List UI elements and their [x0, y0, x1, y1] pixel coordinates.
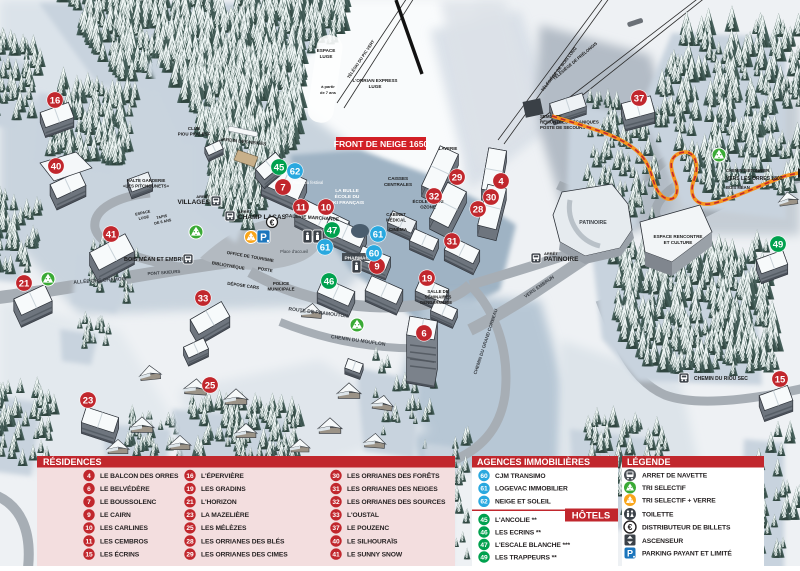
- svg-text:LES ÉCRINS: LES ÉCRINS: [100, 549, 140, 558]
- svg-text:LES ORRIANES DES CIMES: LES ORRIANES DES CIMES: [201, 551, 288, 558]
- svg-text:LE SILHOURAÏS: LE SILHOURAÏS: [347, 537, 398, 545]
- svg-text:7: 7: [280, 182, 285, 193]
- svg-text:LE BOUSSOLENC: LE BOUSSOLENC: [100, 499, 157, 506]
- svg-text:21: 21: [186, 499, 194, 506]
- svg-text:4: 4: [498, 176, 504, 187]
- svg-text:49: 49: [480, 554, 488, 561]
- svg-text:POLICE: POLICE: [273, 281, 289, 286]
- svg-text:LES ORRIANES DES FORÊTS: LES ORRIANES DES FORÊTS: [347, 471, 440, 480]
- svg-text:ET CULTURE: ET CULTURE: [664, 240, 693, 245]
- svg-text:23: 23: [186, 512, 194, 519]
- svg-text:25: 25: [186, 525, 194, 532]
- svg-text:MÉDICAL: MÉDICAL: [386, 218, 406, 223]
- svg-text:L'ORRIAN EXPRESS: L'ORRIAN EXPRESS: [353, 78, 398, 83]
- svg-text:16: 16: [186, 473, 194, 480]
- svg-text:LOGEVAC IMMOBILIER: LOGEVAC IMMOBILIER: [495, 486, 568, 493]
- svg-text:€: €: [270, 218, 275, 228]
- svg-text:Place d'accueil: Place d'accueil: [280, 249, 308, 254]
- svg-text:CENTRALES: CENTRALES: [384, 182, 412, 187]
- svg-text:31: 31: [332, 486, 340, 493]
- svg-text:TRI SELECTIF + VERRE: TRI SELECTIF + VERRE: [642, 498, 716, 505]
- svg-text:€: €: [628, 522, 633, 532]
- svg-text:PATINOIRE: PATINOIRE: [544, 256, 579, 263]
- svg-text:23: 23: [83, 395, 94, 406]
- svg-text:NEIGE ET SOLEIL: NEIGE ET SOLEIL: [495, 499, 551, 506]
- svg-text:11: 11: [86, 538, 93, 545]
- svg-text:49: 49: [773, 239, 784, 250]
- svg-text:LE SUNNY SNOW: LE SUNNY SNOW: [347, 551, 403, 558]
- svg-text:32: 32: [429, 191, 440, 202]
- svg-text:ARRET DE NAVETTE: ARRET DE NAVETTE: [642, 473, 708, 480]
- svg-text:LES ORRIANES DES SOURCES: LES ORRIANES DES SOURCES: [347, 499, 446, 506]
- svg-text:60: 60: [369, 248, 380, 259]
- svg-text:4: 4: [87, 473, 91, 480]
- svg-text:40: 40: [332, 538, 340, 545]
- svg-text:LES GRADINS: LES GRADINS: [201, 486, 246, 493]
- svg-text:AGENCES IMMOBILIÈRES: AGENCES IMMOBILIÈRES: [477, 457, 590, 467]
- svg-text:9: 9: [87, 512, 91, 519]
- svg-text:DISTRIBUTEUR DE BILLETS: DISTRIBUTEUR DE BILLETS: [642, 525, 731, 532]
- svg-text:33: 33: [332, 512, 340, 519]
- svg-text:LUGE: LUGE: [320, 54, 333, 59]
- svg-text:LES MÉLÈZES: LES MÉLÈZES: [201, 523, 247, 532]
- svg-text:ESPACE RENCONTRE: ESPACE RENCONTRE: [654, 234, 703, 239]
- svg-text:PATINOIRE: PATINOIRE: [579, 220, 607, 226]
- svg-text:PIOU PIOU ESF: PIOU PIOU ESF: [178, 132, 211, 137]
- svg-text:19: 19: [422, 273, 433, 284]
- svg-text:9: 9: [374, 261, 379, 272]
- svg-text:LE POUZENC: LE POUZENC: [347, 525, 389, 532]
- svg-text:CJM TRANSIMO: CJM TRANSIMO: [495, 473, 545, 480]
- svg-text:HALTE GARDERIE: HALTE GARDERIE: [127, 178, 166, 183]
- svg-text:32: 32: [332, 499, 340, 506]
- svg-text:L'OUSTAL: L'OUSTAL: [347, 512, 379, 519]
- svg-text:47: 47: [480, 542, 488, 549]
- svg-text:PARKING PAYANT ET LIMITÉ: PARKING PAYANT ET LIMITÉ: [642, 549, 732, 558]
- svg-text:SÉMINAIRES: SÉMINAIRES: [425, 295, 452, 300]
- svg-text:VERS LES ORRES 1800: VERS LES ORRES 1800: [726, 176, 783, 182]
- svg-text:40: 40: [51, 161, 62, 172]
- svg-text:31: 31: [447, 236, 458, 247]
- svg-text:28: 28: [473, 204, 484, 215]
- svg-text:TRI SELECTIF: TRI SELECTIF: [642, 485, 686, 492]
- svg-text:19: 19: [186, 486, 194, 493]
- svg-text:33: 33: [198, 293, 209, 304]
- svg-text:45: 45: [274, 162, 285, 173]
- svg-text:BOIS MÉAN ET EMBRUN: BOIS MÉAN ET EMBRUN: [124, 255, 189, 263]
- svg-text:10: 10: [85, 525, 93, 532]
- svg-text:LES CEMBROS: LES CEMBROS: [100, 538, 149, 545]
- svg-text:6: 6: [87, 486, 91, 493]
- svg-text:MUNICIPALE: MUNICIPALE: [268, 287, 295, 292]
- svg-text:LAVERIE: LAVERIE: [439, 146, 458, 151]
- svg-text:CHAMP LACAS: CHAMP LACAS: [238, 214, 287, 221]
- svg-text:CABINET: CABINET: [386, 212, 406, 217]
- svg-text:60: 60: [480, 473, 488, 480]
- svg-text:VILLAGES: VILLAGES: [177, 199, 210, 206]
- svg-text:6: 6: [421, 328, 426, 339]
- svg-text:46: 46: [480, 529, 488, 536]
- svg-text:15: 15: [775, 374, 786, 385]
- svg-text:37: 37: [332, 525, 340, 532]
- svg-text:CAISSES: CAISSES: [388, 176, 408, 181]
- svg-text:LES ORRIANES DES BLÉS: LES ORRIANES DES BLÉS: [201, 536, 285, 545]
- svg-text:61: 61: [320, 242, 331, 253]
- svg-text:CLUB: CLUB: [188, 126, 200, 131]
- svg-text:LES ORRIANES DES NEIGES: LES ORRIANES DES NEIGES: [347, 486, 438, 493]
- svg-text:Place du festival: Place du festival: [293, 180, 324, 185]
- svg-text:GENDARMERIE: GENDARMERIE: [420, 300, 452, 305]
- svg-text:P: P: [627, 548, 633, 558]
- svg-text:11: 11: [296, 202, 307, 213]
- svg-text:L'ANCOLIE **: L'ANCOLIE **: [495, 517, 537, 524]
- svg-text:16: 16: [50, 95, 61, 106]
- svg-text:61: 61: [373, 229, 384, 240]
- svg-text:LUGE: LUGE: [369, 84, 382, 89]
- svg-text:62: 62: [480, 499, 488, 506]
- svg-text:SKI FRANÇAIS: SKI FRANÇAIS: [330, 200, 365, 206]
- svg-text:37: 37: [634, 93, 645, 104]
- svg-text:CHEMIN PIÉTONNIER: CHEMIN PIÉTONNIER: [726, 168, 769, 173]
- svg-text:62: 62: [290, 166, 301, 177]
- svg-text:TOILETTE: TOILETTE: [642, 512, 674, 519]
- svg-text:46: 46: [324, 276, 335, 287]
- svg-text:RÉSIDENCES: RÉSIDENCES: [43, 457, 102, 467]
- svg-text:P: P: [260, 233, 267, 244]
- svg-text:10: 10: [321, 202, 332, 213]
- svg-text:BOIS MÉAN: BOIS MÉAN: [726, 185, 750, 190]
- svg-text:29: 29: [452, 172, 463, 183]
- svg-text:CINÉMA: CINÉMA: [389, 225, 408, 232]
- svg-text:L'ÉPERVIÈRE: L'ÉPERVIÈRE: [201, 471, 244, 480]
- svg-text:SALLE DE: SALLE DE: [427, 289, 448, 294]
- svg-text:HÔTELS: HÔTELS: [572, 509, 611, 521]
- svg-text:41: 41: [106, 229, 117, 240]
- svg-text:29: 29: [186, 551, 194, 558]
- svg-text:45: 45: [480, 517, 488, 524]
- svg-text:L'ESCALE BLANCHE ***: L'ESCALE BLANCHE ***: [495, 542, 571, 549]
- svg-text:LÉGENDE: LÉGENDE: [627, 457, 671, 467]
- svg-text:LE BALCON DES ORRES: LE BALCON DES ORRES: [100, 473, 179, 480]
- svg-text:LE BELVÉDÈRE: LE BELVÉDÈRE: [100, 484, 150, 493]
- svg-text:à partir: à partir: [321, 84, 335, 89]
- svg-text:25: 25: [205, 380, 216, 391]
- svg-text:28: 28: [186, 538, 194, 545]
- svg-text:ESPACE: ESPACE: [317, 48, 336, 53]
- svg-text:LES CARLINES: LES CARLINES: [100, 525, 148, 532]
- svg-text:ASCENSEUR: ASCENSEUR: [642, 538, 683, 545]
- svg-text:7: 7: [87, 499, 91, 506]
- svg-text:OZONE: OZONE: [420, 205, 436, 210]
- svg-text:de 7 ans: de 7 ans: [320, 90, 337, 95]
- svg-text:21: 21: [19, 278, 30, 289]
- svg-text:L'HORIZON: L'HORIZON: [201, 499, 237, 506]
- svg-text:CHEMIN DU RIOU SEC: CHEMIN DU RIOU SEC: [694, 376, 748, 382]
- svg-text:LA MAZELIÈRE: LA MAZELIÈRE: [201, 510, 250, 519]
- svg-text:FRONT DE NEIGE 1650: FRONT DE NEIGE 1650: [334, 139, 429, 149]
- svg-text:41: 41: [332, 551, 340, 558]
- svg-text:LE CAIRN: LE CAIRN: [100, 512, 131, 519]
- svg-text:47: 47: [327, 225, 338, 236]
- svg-text:LES ECRINS **: LES ECRINS **: [495, 529, 541, 536]
- svg-text:LES TRAPPEURS **: LES TRAPPEURS **: [495, 554, 557, 561]
- svg-text:15: 15: [85, 551, 93, 558]
- svg-text:LA BULLE: LA BULLE: [335, 188, 359, 194]
- svg-text:30: 30: [486, 192, 497, 203]
- svg-text:61: 61: [480, 486, 488, 493]
- svg-text:«LES PITCHOUNETS»: «LES PITCHOUNETS»: [123, 184, 170, 189]
- svg-text:30: 30: [332, 473, 340, 480]
